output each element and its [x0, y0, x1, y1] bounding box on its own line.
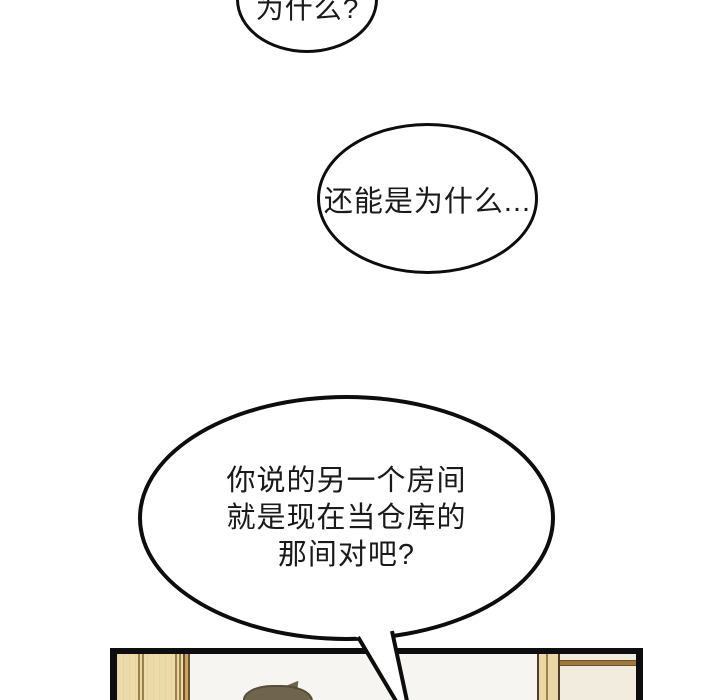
- speech-bubble-top-text: 为什么?: [237, 0, 378, 24]
- speech-line-2: 就是现在当仓库的: [226, 500, 466, 537]
- door-frame-left: [117, 654, 190, 700]
- speech-line-1: 你说的另一个房间: [226, 463, 466, 500]
- pillar-grain-line: [546, 654, 548, 700]
- wood-grain-line: [179, 654, 181, 700]
- comic-page: 为什么? 还能是为什么... 你说的另一个房间 就是现在当仓库的 那间对吧?: [0, 0, 720, 700]
- speech-bubble-middle: 还能是为什么...: [317, 123, 538, 274]
- character-hair: [243, 685, 313, 700]
- wood-grain-line: [138, 654, 140, 700]
- shelf-line: [560, 660, 636, 666]
- speech-bubble-main: 你说的另一个房间 就是现在当仓库的 那间对吧?: [138, 395, 555, 641]
- speech-bubble-tail: [346, 616, 418, 700]
- speech-bubble-main-text: 你说的另一个房间 就是现在当仓库的 那间对吧?: [226, 463, 466, 574]
- wood-pillar: [537, 654, 560, 700]
- cabinet: [560, 654, 636, 700]
- wood-grain-line: [175, 654, 177, 700]
- wood-grain-line: [142, 654, 144, 700]
- speech-bubble-middle-text: 还能是为什么...: [324, 178, 531, 220]
- speech-line-3: 那间对吧?: [226, 537, 466, 574]
- door-frame-edge: [183, 654, 190, 700]
